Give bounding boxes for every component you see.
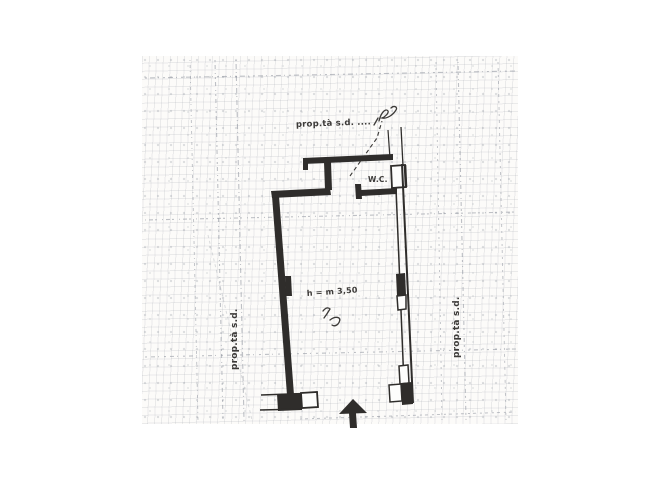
grid-line: [145, 212, 516, 220]
arrow-stem: [349, 413, 357, 428]
entrance-threshold-left: [260, 392, 318, 411]
wall-left-pilaster: [285, 276, 292, 296]
leader-line: [350, 121, 382, 176]
grid-line: [215, 60, 223, 421]
scanned-floorplan-page: prop.tà s.d. .... W.C. h = m 3,50 prop.t…: [0, 0, 648, 492]
grid-line: [436, 62, 442, 420]
grid-line: [190, 60, 198, 421]
handwritten-mark: [323, 308, 340, 326]
window-pier: [396, 273, 406, 296]
boundary-note-right: prop.tà s.d.: [452, 297, 462, 358]
grid-lines: [145, 60, 516, 421]
threshold-box-right: [389, 384, 402, 402]
boundary-lines: [388, 127, 403, 166]
grid-line: [300, 412, 516, 419]
wc-window-frame-edge: [405, 165, 406, 187]
walls: [271, 154, 397, 395]
window-mullion-box: [397, 295, 406, 310]
grid-line: [145, 71, 516, 78]
wall-top-main: [271, 188, 331, 198]
grid-line: [498, 62, 506, 420]
threshold-box-left: [301, 392, 318, 408]
grid-line: [458, 62, 466, 420]
wc-bottom-wall: [361, 188, 397, 196]
wall-top-wc: [303, 154, 393, 164]
threshold-line: [260, 409, 302, 410]
wc-label: W.C.: [368, 175, 388, 184]
room-height-note: h = m 3,50: [307, 285, 359, 298]
arrow-head: [339, 399, 367, 414]
threshold-block: [277, 393, 302, 411]
entrance-arrow-icon: [339, 399, 367, 428]
wall-top-end-return: [303, 158, 308, 170]
boundary-note-left: prop.tà s.d.: [230, 309, 240, 370]
window-mullion-box: [399, 365, 409, 384]
window-wall-right: [389, 164, 413, 405]
floorplan-drawing: prop.tà s.d. .... W.C. h = m 3,50 prop.t…: [0, 0, 648, 492]
handwritten-mark: [374, 107, 397, 125]
window-pier: [401, 382, 413, 405]
wc-partition-wall: [324, 162, 332, 190]
boundary-note-top: prop.tà s.d. ....: [296, 117, 371, 130]
boundary-line: [401, 127, 403, 166]
wc-door-jamb: [355, 184, 362, 199]
